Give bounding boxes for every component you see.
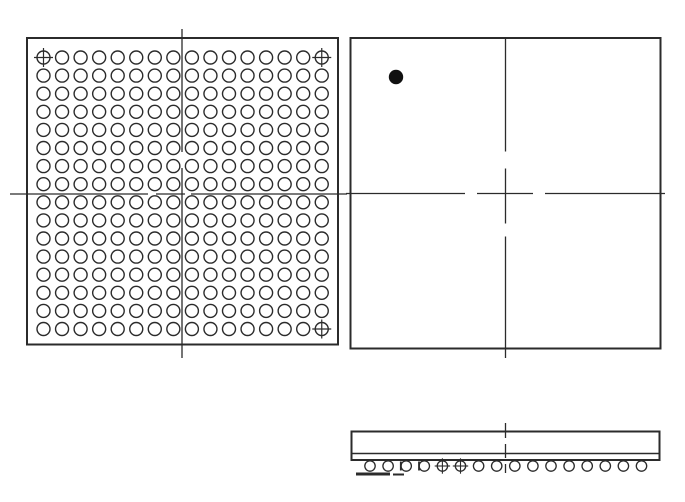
ball	[93, 160, 106, 173]
ball	[278, 268, 291, 281]
ball	[93, 286, 106, 299]
ball	[93, 196, 106, 209]
ball	[315, 286, 328, 299]
ball	[148, 214, 161, 227]
ball	[37, 286, 50, 299]
ball	[148, 196, 161, 209]
ball	[260, 178, 273, 191]
ball	[130, 105, 143, 118]
ball	[204, 178, 217, 191]
ball	[167, 304, 180, 317]
ball	[297, 232, 310, 245]
ball	[74, 123, 87, 136]
ball	[167, 250, 180, 263]
ball	[130, 304, 143, 317]
ball	[148, 123, 161, 136]
ball	[260, 268, 273, 281]
ball	[56, 51, 69, 64]
ball	[111, 250, 124, 263]
ball	[278, 105, 291, 118]
ball	[241, 214, 254, 227]
ball	[223, 105, 236, 118]
ball	[241, 178, 254, 191]
ball	[278, 51, 291, 64]
ball	[93, 323, 106, 336]
ball	[56, 87, 69, 100]
ball	[130, 87, 143, 100]
ball	[315, 160, 328, 173]
ball	[278, 286, 291, 299]
ball	[260, 232, 273, 245]
bottom-view	[10, 29, 347, 358]
ball	[148, 51, 161, 64]
ball	[473, 461, 483, 471]
ball	[93, 51, 106, 64]
ball	[93, 87, 106, 100]
ball	[93, 304, 106, 317]
ball	[74, 250, 87, 263]
ball	[297, 214, 310, 227]
ball	[93, 105, 106, 118]
ball	[185, 51, 198, 64]
ball	[111, 232, 124, 245]
ball	[204, 214, 217, 227]
ball	[297, 286, 310, 299]
ball	[130, 69, 143, 82]
ball	[241, 232, 254, 245]
ball	[74, 87, 87, 100]
ball	[56, 250, 69, 263]
ball	[618, 461, 628, 471]
ball	[185, 105, 198, 118]
ball	[204, 51, 217, 64]
ball	[241, 105, 254, 118]
ball	[204, 304, 217, 317]
ball	[93, 69, 106, 82]
ball	[204, 87, 217, 100]
ball	[111, 304, 124, 317]
ball	[401, 461, 411, 471]
ball	[260, 214, 273, 227]
ball	[278, 142, 291, 155]
ball	[297, 250, 310, 263]
ball	[37, 323, 50, 336]
ball	[315, 69, 328, 82]
ball	[204, 69, 217, 82]
ball	[167, 178, 180, 191]
ball	[297, 196, 310, 209]
ball	[167, 123, 180, 136]
ball	[167, 196, 180, 209]
ball	[74, 268, 87, 281]
ball	[37, 123, 50, 136]
ball	[37, 87, 50, 100]
ball	[167, 214, 180, 227]
ball	[241, 69, 254, 82]
ball	[56, 214, 69, 227]
ball	[223, 123, 236, 136]
ball	[204, 232, 217, 245]
ball	[223, 304, 236, 317]
ball	[111, 87, 124, 100]
ball	[148, 87, 161, 100]
ball	[204, 105, 217, 118]
ball	[223, 69, 236, 82]
side-view	[352, 423, 660, 475]
ball	[74, 304, 87, 317]
ball	[148, 69, 161, 82]
ball	[297, 304, 310, 317]
ball	[185, 232, 198, 245]
ball	[167, 286, 180, 299]
ball	[56, 232, 69, 245]
ball	[315, 142, 328, 155]
ball	[223, 286, 236, 299]
ball	[278, 123, 291, 136]
ball	[167, 232, 180, 245]
ball	[148, 142, 161, 155]
ball	[148, 160, 161, 173]
ball	[167, 69, 180, 82]
ball	[93, 142, 106, 155]
ball	[297, 160, 310, 173]
ball	[148, 268, 161, 281]
ball	[564, 461, 574, 471]
ball	[223, 268, 236, 281]
ball	[278, 304, 291, 317]
ball	[148, 304, 161, 317]
ball	[315, 214, 328, 227]
ball	[93, 123, 106, 136]
ball	[37, 214, 50, 227]
ball	[37, 232, 50, 245]
ball	[93, 232, 106, 245]
ball	[148, 232, 161, 245]
ball	[185, 214, 198, 227]
ball	[74, 69, 87, 82]
ball	[241, 123, 254, 136]
ball	[130, 214, 143, 227]
ball	[74, 214, 87, 227]
ball	[74, 232, 87, 245]
ball	[315, 105, 328, 118]
ball	[297, 87, 310, 100]
pin1-indicator-dot	[389, 70, 403, 84]
ball	[260, 160, 273, 173]
ball	[241, 286, 254, 299]
ball	[204, 323, 217, 336]
ball	[185, 123, 198, 136]
ball	[37, 105, 50, 118]
ball	[185, 178, 198, 191]
ball	[297, 123, 310, 136]
ball	[93, 178, 106, 191]
ball	[582, 461, 592, 471]
ball	[56, 160, 69, 173]
ball	[204, 250, 217, 263]
ball	[241, 142, 254, 155]
ball	[636, 461, 646, 471]
ball	[167, 160, 180, 173]
ball	[204, 142, 217, 155]
ball	[204, 196, 217, 209]
ball	[260, 196, 273, 209]
ball	[297, 323, 310, 336]
ball	[278, 178, 291, 191]
ball	[223, 323, 236, 336]
ball	[56, 178, 69, 191]
ball	[185, 250, 198, 263]
ball	[492, 461, 502, 471]
ball	[365, 461, 375, 471]
ball	[111, 178, 124, 191]
ball	[37, 196, 50, 209]
ball	[148, 105, 161, 118]
ball	[260, 323, 273, 336]
ball	[419, 461, 429, 471]
ball	[241, 323, 254, 336]
ball	[185, 160, 198, 173]
ball	[260, 87, 273, 100]
ball	[130, 268, 143, 281]
ball	[93, 250, 106, 263]
ball	[185, 87, 198, 100]
ball	[223, 214, 236, 227]
ball	[74, 196, 87, 209]
ball	[167, 87, 180, 100]
ball	[241, 250, 254, 263]
ball	[204, 123, 217, 136]
ball	[383, 461, 393, 471]
ball	[56, 304, 69, 317]
ball	[56, 123, 69, 136]
ball	[315, 304, 328, 317]
ball	[185, 142, 198, 155]
package-drawing-page	[0, 0, 685, 502]
ball	[278, 214, 291, 227]
ball	[130, 232, 143, 245]
package-drawing	[0, 0, 685, 502]
ball	[223, 51, 236, 64]
ball	[130, 123, 143, 136]
ball	[111, 268, 124, 281]
ball	[111, 323, 124, 336]
ball	[260, 286, 273, 299]
ball	[600, 461, 610, 471]
ball	[185, 304, 198, 317]
ball	[223, 196, 236, 209]
ball	[223, 232, 236, 245]
ball	[278, 323, 291, 336]
ball	[185, 323, 198, 336]
ball	[241, 268, 254, 281]
ball	[37, 250, 50, 263]
ball	[74, 323, 87, 336]
ball	[56, 196, 69, 209]
ball	[111, 123, 124, 136]
ball	[297, 105, 310, 118]
ball	[148, 178, 161, 191]
ball	[315, 178, 328, 191]
ball	[130, 323, 143, 336]
ball	[278, 87, 291, 100]
ball	[37, 304, 50, 317]
ball	[241, 87, 254, 100]
ball	[130, 160, 143, 173]
ball	[528, 461, 538, 471]
ball	[315, 123, 328, 136]
ball	[130, 286, 143, 299]
ball	[260, 142, 273, 155]
ball	[204, 268, 217, 281]
ball	[74, 286, 87, 299]
ball	[167, 142, 180, 155]
ball	[297, 69, 310, 82]
ball	[185, 286, 198, 299]
ball	[260, 304, 273, 317]
ball	[167, 51, 180, 64]
ball	[111, 214, 124, 227]
ball	[223, 160, 236, 173]
ball	[278, 69, 291, 82]
ball	[223, 250, 236, 263]
ball	[148, 323, 161, 336]
ball	[297, 178, 310, 191]
ball	[260, 123, 273, 136]
ball	[223, 142, 236, 155]
ball	[223, 178, 236, 191]
ball	[315, 232, 328, 245]
ball	[74, 51, 87, 64]
ball	[241, 160, 254, 173]
ball	[111, 69, 124, 82]
ball	[278, 160, 291, 173]
ball	[241, 196, 254, 209]
ball	[278, 232, 291, 245]
ball	[37, 178, 50, 191]
ball	[74, 105, 87, 118]
ball	[241, 304, 254, 317]
ball	[510, 461, 520, 471]
ball	[315, 268, 328, 281]
ball	[56, 286, 69, 299]
ball	[130, 51, 143, 64]
ball	[260, 69, 273, 82]
ball	[37, 160, 50, 173]
ball	[56, 69, 69, 82]
ball	[93, 268, 106, 281]
ball	[37, 142, 50, 155]
ball	[56, 105, 69, 118]
ball	[111, 51, 124, 64]
ball	[278, 196, 291, 209]
top-view	[346, 38, 665, 358]
ball	[297, 142, 310, 155]
ball	[204, 160, 217, 173]
ball	[111, 142, 124, 155]
ball	[130, 196, 143, 209]
ball	[315, 196, 328, 209]
ball	[204, 286, 217, 299]
ball	[185, 196, 198, 209]
ball	[278, 250, 291, 263]
ball	[56, 323, 69, 336]
ball	[297, 268, 310, 281]
ball	[56, 268, 69, 281]
ball	[167, 268, 180, 281]
ball	[297, 51, 310, 64]
ball	[37, 268, 50, 281]
ball	[315, 250, 328, 263]
ball	[111, 196, 124, 209]
ball	[56, 142, 69, 155]
ball	[223, 87, 236, 100]
ball	[111, 286, 124, 299]
ball	[37, 69, 50, 82]
ball	[74, 178, 87, 191]
ball	[74, 160, 87, 173]
ball	[111, 160, 124, 173]
ball	[148, 250, 161, 263]
ball	[74, 142, 87, 155]
ball	[167, 105, 180, 118]
ball	[111, 105, 124, 118]
ball	[185, 268, 198, 281]
ball	[260, 105, 273, 118]
ball	[130, 178, 143, 191]
ball	[241, 51, 254, 64]
ball	[167, 323, 180, 336]
ball	[315, 87, 328, 100]
ball	[148, 286, 161, 299]
ball	[185, 69, 198, 82]
ball	[260, 250, 273, 263]
ball	[546, 461, 556, 471]
ball	[260, 51, 273, 64]
ball	[93, 214, 106, 227]
ball	[130, 142, 143, 155]
ball	[130, 250, 143, 263]
